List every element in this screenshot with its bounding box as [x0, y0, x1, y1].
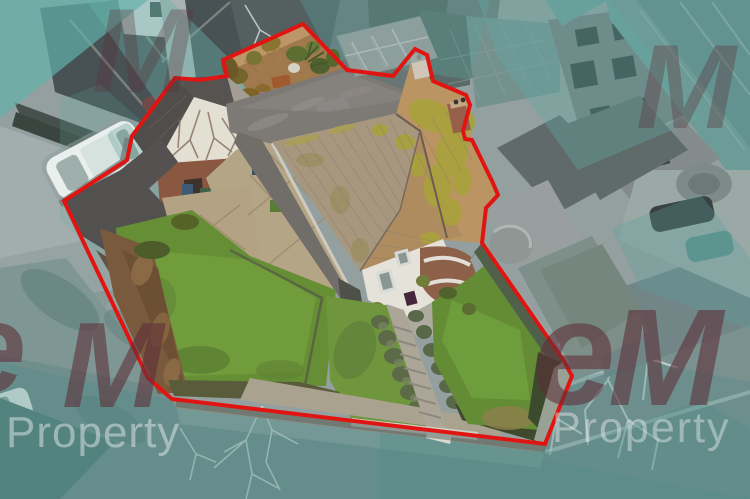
svg-text:M: M: [92, 0, 195, 118]
svg-text:e: e: [0, 277, 26, 420]
svg-text:Property: Property: [6, 408, 180, 457]
svg-text:Property: Property: [552, 404, 731, 452]
svg-text:M: M: [636, 20, 739, 154]
